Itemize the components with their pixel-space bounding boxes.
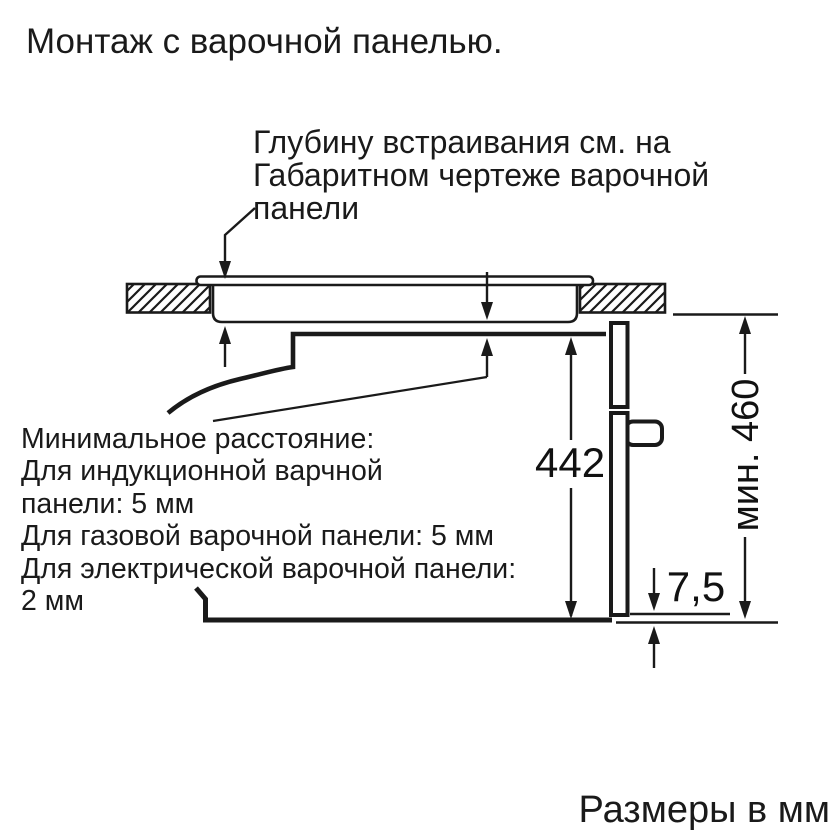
min-distance-note-line: Для электрической варочной панели:: [21, 553, 516, 585]
units-note: Размеры в мм: [530, 788, 830, 832]
min-clearance-leader: [213, 377, 487, 421]
countertop-right-hatch: [580, 284, 665, 313]
min-distance-note-line: панели: 5 мм: [21, 488, 516, 520]
arrowhead-up: [481, 338, 493, 356]
dim-label-niche-height: мин. 460: [727, 379, 765, 532]
min-distance-note: Минимальное расстояние: Для индукционной…: [21, 423, 516, 617]
hob-top-plate: [197, 277, 594, 286]
arrowhead-down: [648, 593, 660, 611]
min-distance-note-line: Для индукционной варчной: [21, 455, 516, 487]
min-distance-note-line: Для газовой варочной панели: 5 мм: [21, 520, 516, 552]
embedding-depth-note-line: Габаритном чертеже варочной: [253, 159, 709, 192]
arrowhead-up: [219, 326, 231, 344]
oven-top-outline: [168, 334, 606, 413]
embedding-depth-note-line: панели: [253, 192, 709, 225]
page-title: Монтаж с варочной панелью.: [26, 22, 503, 62]
embedding-depth-note: Глубину встраивания см. на Габаритном че…: [253, 126, 709, 225]
installation-drawing-page: Монтаж с варочной панелью. Глубину встра…: [0, 0, 840, 840]
hob-tub: [213, 284, 577, 322]
arrowhead-down: [565, 601, 577, 619]
dim-label-oven-height: 442: [535, 442, 605, 484]
oven-rear-mounting-tab: [626, 422, 662, 446]
countertop-left-hatch: [127, 284, 210, 313]
arrowhead-up: [565, 337, 577, 355]
dim-label-bottom-gap: 7,5: [661, 566, 731, 608]
arrowhead-up: [648, 626, 660, 644]
arrowhead-down: [739, 601, 751, 619]
min-distance-note-line: Минимальное расстояние:: [21, 423, 516, 455]
arrowhead-up: [739, 316, 751, 334]
min-distance-note-line: 2 мм: [21, 585, 516, 617]
oven-rear-panel-upper: [611, 323, 628, 407]
embedding-depth-leader: [219, 208, 255, 279]
hob-section: [197, 277, 594, 323]
oven-rear-panel-lower: [611, 413, 628, 615]
embedding-depth-note-line: Глубину встраивания см. на: [253, 126, 709, 159]
